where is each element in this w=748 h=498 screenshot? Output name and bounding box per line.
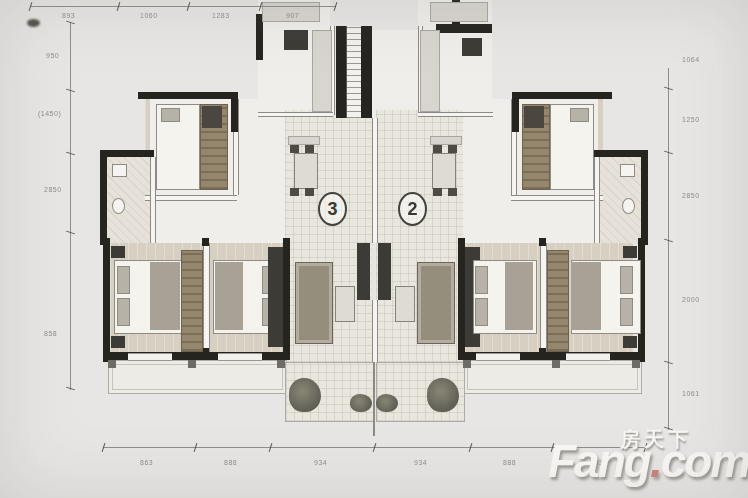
dim-label: 863 (140, 459, 153, 466)
dim-label: 888 (503, 459, 516, 466)
dim-label: 2850 (44, 186, 62, 193)
dim-label: 888 (224, 459, 237, 466)
dim-label: 2850 (682, 192, 700, 199)
dim-label: 858 (44, 330, 57, 337)
dim-label: 1283 (212, 12, 230, 19)
logo-dot: . (650, 435, 661, 487)
dim-label: 1061 (682, 390, 700, 397)
dim-label: 1060 (140, 12, 158, 19)
fang-logo: Fang.com (548, 434, 748, 488)
dim-label: 934 (314, 459, 327, 466)
dim-label: (1450) (38, 110, 61, 117)
dim-label: 2000 (682, 296, 700, 303)
floor-plan-image: 3 2 893 1060 1283 907 950 (1450) 2850 85… (0, 0, 748, 498)
dim-line-right (668, 68, 669, 430)
dim-label: 950 (46, 52, 59, 59)
dim-label: 934 (414, 459, 427, 466)
dim-label: 1064 (682, 56, 700, 63)
dim-label: 907 (286, 12, 299, 19)
fang-watermark: 房天下 Fang.com (540, 420, 748, 498)
dim-line-top (30, 6, 335, 7)
dim-line-left (70, 22, 71, 390)
dim-tick (334, 2, 338, 11)
dim-label: 1250 (682, 116, 700, 123)
dim-label: 893 (62, 12, 75, 19)
